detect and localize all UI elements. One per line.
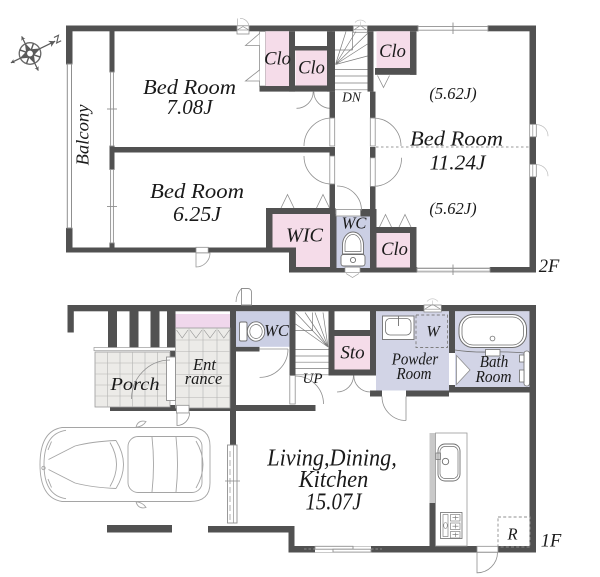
svg-text:1F: 1F [541,532,562,552]
svg-text:WC: WC [342,214,368,233]
svg-text:DN: DN [341,90,362,105]
svg-text:WIC: WIC [286,224,323,246]
svg-text:UP: UP [303,371,323,387]
svg-text:Bed Room: Bed Room [410,126,503,150]
svg-text:6.25J: 6.25J [173,202,222,226]
svg-text:Clo: Clo [298,59,325,79]
svg-text:15.07J: 15.07J [306,489,363,516]
svg-text:Clo: Clo [381,240,408,260]
svg-text:7.08J: 7.08J [167,95,214,119]
svg-text:Sto: Sto [340,342,364,363]
svg-text:2F: 2F [539,257,560,277]
svg-text:Room: Room [396,364,432,383]
svg-text:R: R [506,525,517,544]
svg-text:WC: WC [264,321,290,340]
svg-text:Room: Room [475,367,512,386]
svg-text:Clo: Clo [379,42,406,62]
svg-text:Balcony: Balcony [73,104,93,165]
svg-text:11.24J: 11.24J [430,151,487,175]
svg-text:(5.62J): (5.62J) [429,84,476,103]
svg-text:W: W [426,324,441,341]
svg-text:Porch: Porch [109,374,159,394]
svg-text:rance: rance [185,369,223,388]
svg-text:Bed Room: Bed Room [150,179,244,203]
svg-text:(5.62J): (5.62J) [429,199,476,218]
svg-text:Clo: Clo [264,50,291,70]
